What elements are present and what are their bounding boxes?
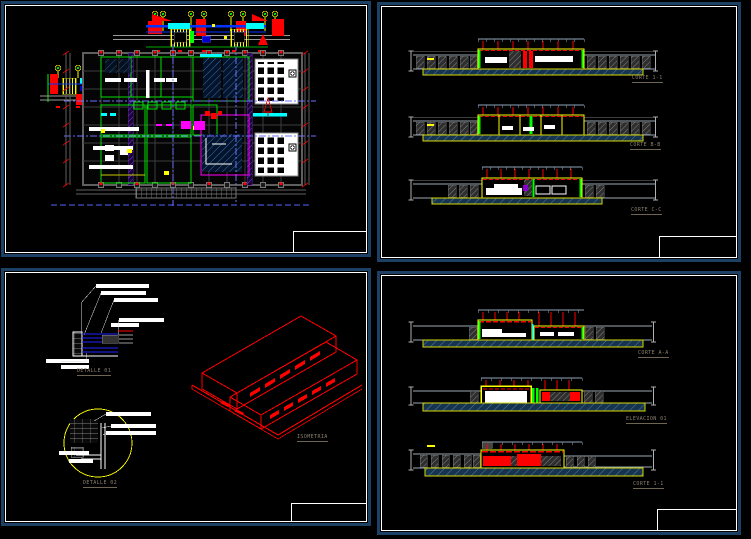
section-label: CORTE C-C — [631, 208, 662, 215]
section-row-3 — [409, 167, 659, 204]
plan-body — [83, 34, 302, 188]
section-row-1 — [409, 39, 659, 75]
sheet-sections-top: CORTE 1-1 CORTE B-B CORTE C-C — [377, 2, 741, 262]
section-row-2 — [409, 105, 659, 141]
detail-label: DETALLE 02 — [83, 481, 117, 488]
cad-canvas: CORTE 1-1 CORTE B-B CORTE C-C — [0, 0, 751, 539]
section-label: CORTE 1-1 — [633, 482, 664, 489]
section-row-2 — [409, 378, 657, 411]
detail-2 — [59, 409, 156, 477]
plan-top-elevation — [113, 11, 290, 52]
title-block — [657, 509, 736, 530]
section-label: ELEVACION 01 — [626, 417, 667, 424]
sheet-sections-bottom: CORTE A-A ELEVACION 01 CORTE 1-1 — [377, 271, 741, 535]
section-label: CORTE 1-1 — [632, 76, 663, 83]
section-row-1 — [409, 310, 657, 347]
title-block — [293, 231, 366, 252]
back-volume-windows — [250, 351, 320, 397]
sheet-floor-plan — [1, 1, 371, 257]
title-block — [291, 503, 366, 521]
detail-1 — [46, 284, 164, 369]
isometric-label: ISOMETRIA — [297, 435, 328, 442]
detail-label: DETALLE 01 — [77, 369, 111, 376]
section-row-3 — [409, 442, 657, 476]
sections-top-drawing — [382, 7, 736, 257]
floor-plan-drawing — [6, 6, 366, 252]
details-viewport[interactable]: DETALLE 01 DETALLE 02 ISOMETRIA — [5, 272, 367, 522]
sheet-details: DETALLE 01 DETALLE 02 ISOMETRIA — [1, 268, 371, 526]
sections-bottom-drawing — [382, 276, 736, 530]
sections-bottom-viewport[interactable]: CORTE A-A ELEVACION 01 CORTE 1-1 — [381, 275, 737, 531]
sections-top-viewport[interactable]: CORTE 1-1 CORTE B-B CORTE C-C — [381, 6, 737, 258]
isometric-drawing — [192, 316, 362, 439]
title-block — [659, 236, 736, 257]
details-drawing — [6, 273, 366, 521]
section-label: CORTE A-A — [638, 351, 669, 358]
section-label: CORTE B-B — [630, 143, 661, 150]
floor-plan-viewport[interactable] — [5, 5, 367, 253]
